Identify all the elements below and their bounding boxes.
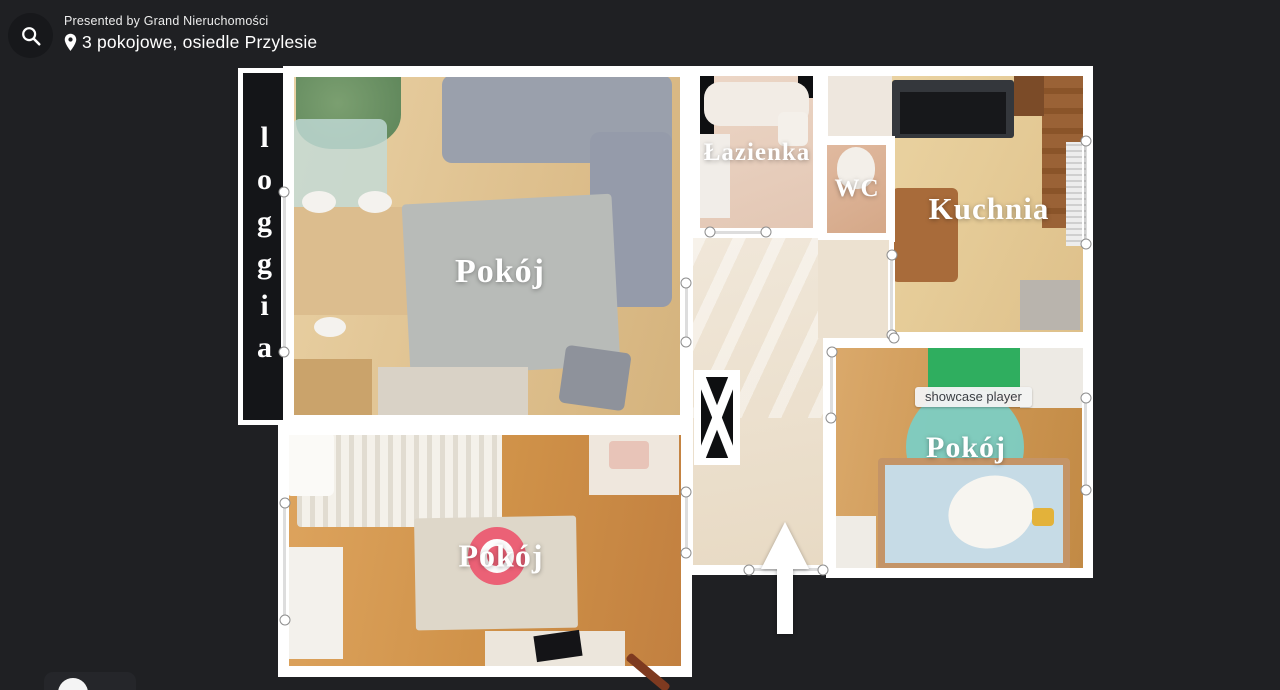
top-bar: Presented by Grand Nieruchomości 3 pokoj… [0, 0, 1280, 64]
search-button[interactable] [8, 13, 53, 58]
chair-shape [358, 191, 392, 213]
view-controls[interactable] [44, 672, 136, 690]
toy-shape [1032, 508, 1054, 526]
x-cross-icon [701, 377, 733, 458]
room-label-bedroom[interactable]: Pokój [459, 538, 544, 575]
room-living-floor [294, 77, 680, 415]
door-marker [683, 283, 690, 342]
pillow-shape [289, 435, 334, 496]
room-label-kids[interactable]: Pokój [926, 431, 1006, 465]
cabinet-wood-shape [1014, 76, 1044, 116]
presented-by-label: Presented by Grand Nieruchomości [64, 14, 268, 28]
view-mode-button[interactable] [58, 678, 88, 690]
search-icon [20, 25, 42, 47]
wall-node [681, 337, 692, 348]
door-marker [683, 492, 690, 553]
wall-node [705, 227, 716, 238]
door-marker [828, 352, 835, 418]
location-pin-icon [63, 33, 78, 52]
wall-node [280, 498, 291, 509]
box-shape [1020, 280, 1080, 330]
room-hallway-notch [818, 240, 894, 338]
cooktop-shape [900, 92, 1006, 134]
entry-arrow[interactable] [758, 520, 812, 636]
chair-shape [302, 191, 336, 213]
wall-node [681, 487, 692, 498]
nightstand-shape [836, 516, 876, 568]
room-label-loggia[interactable]: loggia [247, 121, 281, 373]
room-label-kitchen[interactable]: Kuchnia [929, 191, 1050, 227]
wall-node [1081, 239, 1092, 250]
property-title-row: 3 pokojowe, osiedle Przylesie [63, 32, 317, 53]
window-marker [281, 503, 288, 620]
ceiling-strip-shape [828, 76, 892, 138]
wall-node [827, 347, 838, 358]
property-title: 3 pokojowe, osiedle Przylesie [82, 32, 317, 53]
chair-shape [314, 317, 346, 337]
wall-node [1081, 136, 1092, 147]
room-living [283, 66, 691, 426]
wall-node [681, 278, 692, 289]
wall-node [1081, 393, 1092, 404]
showcase-player-canvas[interactable]: loggia [0, 0, 1280, 690]
blanket-shape [609, 441, 649, 469]
wall-node [280, 615, 291, 626]
cabinet-shape [294, 359, 372, 415]
window-marker [1082, 398, 1089, 490]
cursor-tooltip: showcase player [915, 387, 1032, 407]
window-marker [1082, 141, 1089, 244]
wall-node [818, 565, 829, 576]
door-marker [710, 229, 766, 236]
room-loggia-floor: loggia [243, 73, 285, 420]
wall-node [889, 333, 900, 344]
wall-node [826, 413, 837, 424]
sideboard-shape [378, 367, 528, 415]
window-marker [281, 192, 288, 352]
wall-node [761, 227, 772, 238]
dining-table-shape [294, 207, 416, 315]
room-label-bathroom[interactable]: Łazienka [704, 139, 811, 167]
wall-node [887, 250, 898, 261]
door-marker [888, 255, 895, 335]
wall-node [1081, 485, 1092, 496]
room-label-wc[interactable]: WC [834, 175, 879, 203]
armchair-shape [558, 345, 631, 412]
shaft-x-symbol [694, 370, 740, 465]
wall-node [744, 565, 755, 576]
desk-shape [289, 547, 343, 659]
room-label-living[interactable]: Pokój [455, 253, 545, 291]
wall-node [681, 548, 692, 559]
